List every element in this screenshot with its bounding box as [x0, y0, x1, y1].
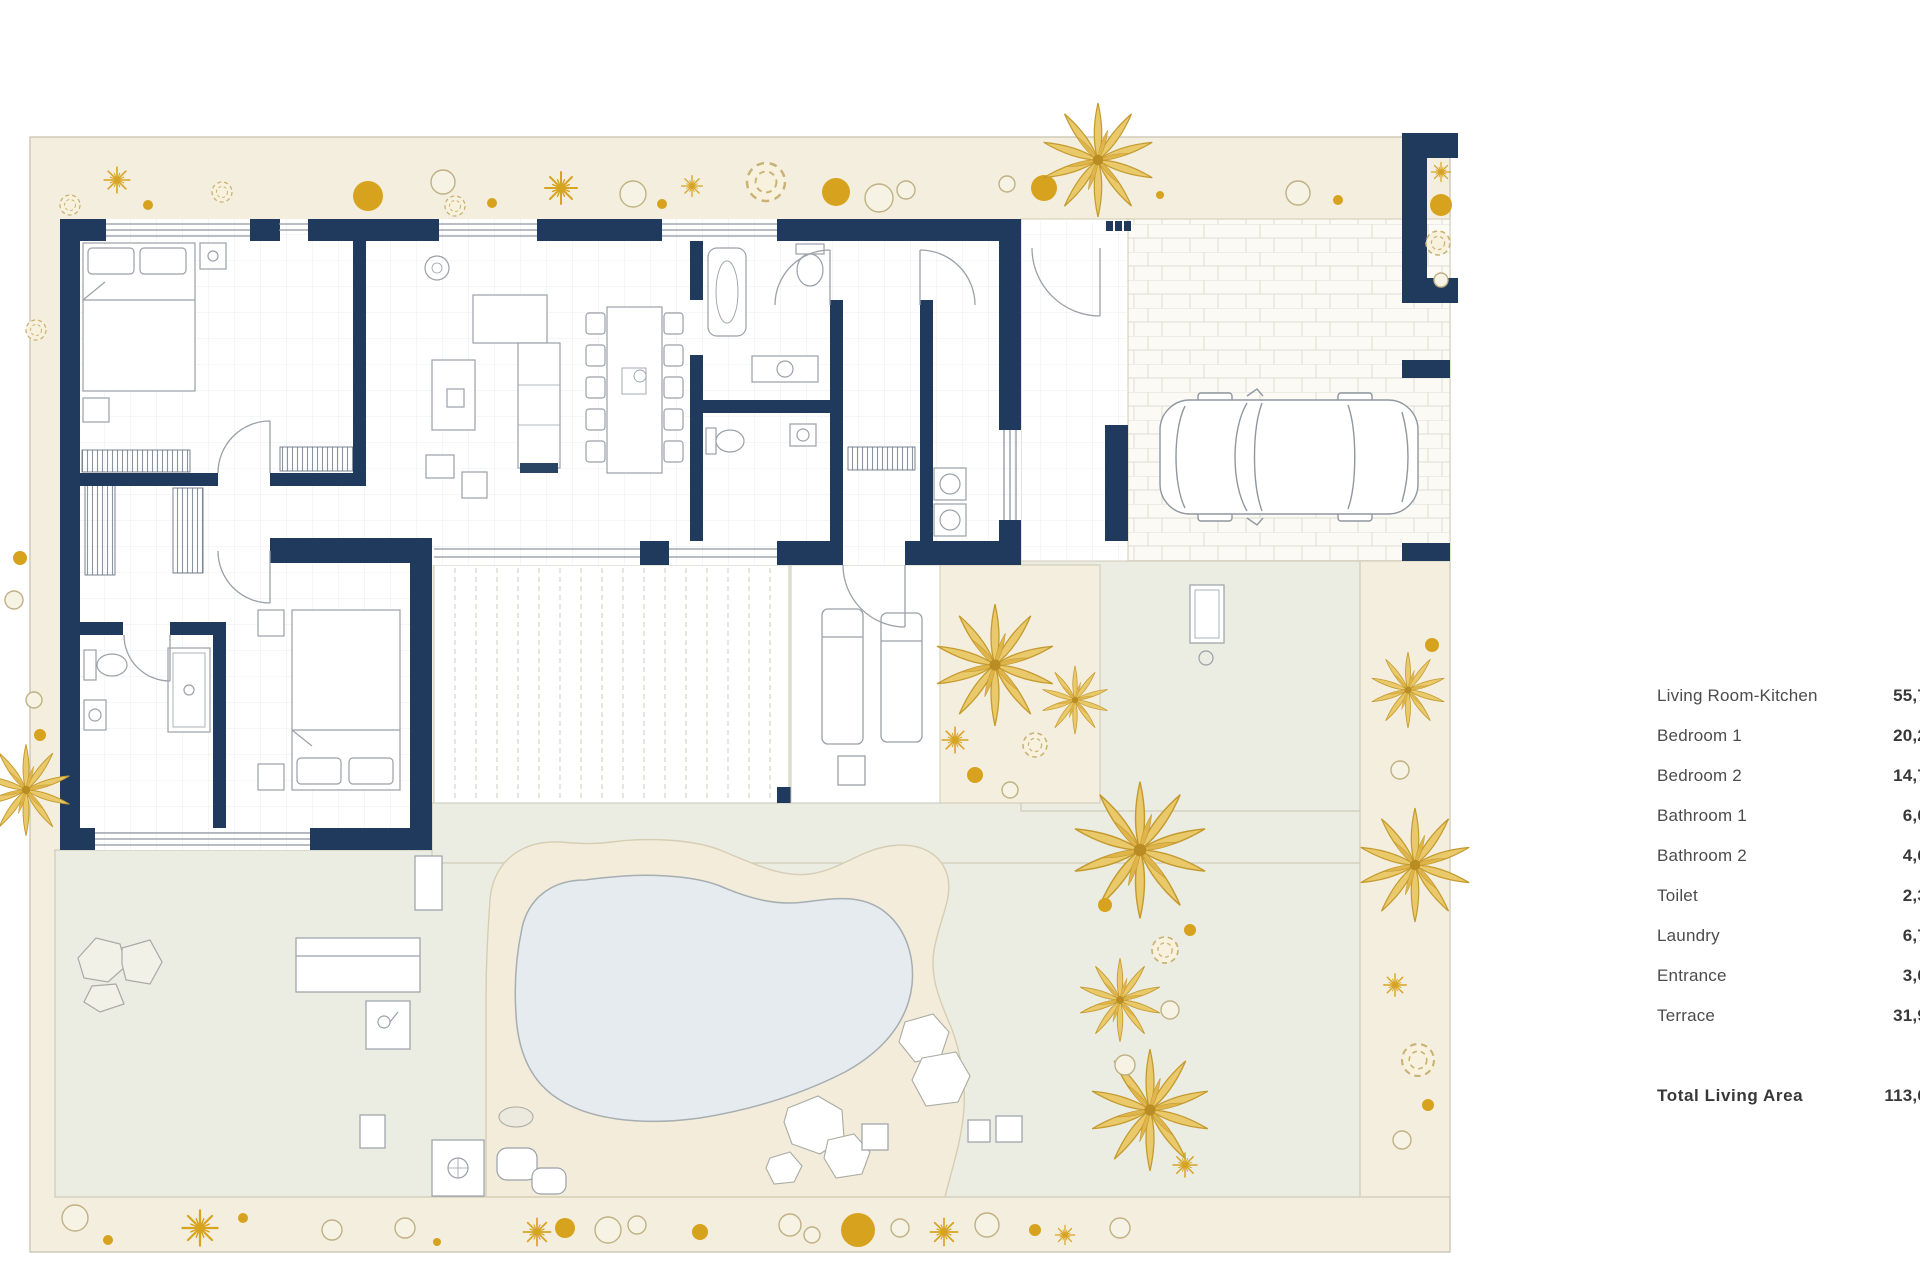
outdoor-chair: [366, 1001, 410, 1049]
room-area: 6,7: [1903, 916, 1920, 956]
stone: [532, 1168, 566, 1194]
legend-row: Toilet 2,3: [1657, 876, 1920, 916]
legend-row: Entrance 3,0: [1657, 956, 1920, 996]
planter-box: [415, 856, 442, 910]
vanity: [752, 356, 818, 382]
total-area: 113,6: [1884, 1076, 1920, 1116]
room-label: Toilet: [1657, 876, 1698, 916]
legend-row: Bedroom 2 14,7: [1657, 756, 1920, 796]
outdoor-sofa: [296, 938, 420, 992]
planter-box: [968, 1120, 990, 1142]
area-legend: Living Room-Kitchen 55,7 Bedroom 1 20,2 …: [1657, 676, 1920, 1116]
sun-lounger-area: [791, 565, 940, 803]
room-label: Bedroom 2: [1657, 756, 1742, 796]
nightstand: [83, 398, 109, 422]
legend-row: Bathroom 2 4,6: [1657, 836, 1920, 876]
room-area: 31,9: [1893, 996, 1920, 1036]
room-label: Living Room-Kitchen: [1657, 676, 1818, 716]
room-area: 14,7: [1893, 756, 1920, 796]
planter-box: [862, 1124, 888, 1150]
legend-row: Bedroom 1 20,2: [1657, 716, 1920, 756]
desk-chair: [447, 389, 464, 407]
room-area: 3,0: [1903, 956, 1920, 996]
dining-table: [586, 307, 683, 473]
pool: [486, 840, 970, 1197]
floor-plan-svg: [0, 0, 1920, 1280]
planter-box: [360, 1115, 385, 1148]
room-area: 55,7: [1893, 676, 1920, 716]
room-label: Bedroom 1: [1657, 716, 1742, 756]
side-table: [838, 756, 865, 785]
nightstand: [258, 610, 284, 636]
nightstand: [258, 764, 284, 790]
car-top-view: [1160, 389, 1418, 525]
room-label: Laundry: [1657, 916, 1720, 956]
legend-total-row: Total Living Area 113,6: [1657, 1076, 1920, 1116]
room-label: Bathroom 2: [1657, 836, 1747, 876]
room-area: 2,3: [1903, 876, 1920, 916]
nightstand: [200, 243, 226, 269]
kitchen-counter: [518, 343, 560, 468]
legend-row: Living Room-Kitchen 55,7: [1657, 676, 1920, 716]
room-area: 6,0: [1903, 796, 1920, 836]
room-label: Terrace: [1657, 996, 1715, 1036]
legend-row: Terrace 31,9: [1657, 996, 1920, 1036]
room-area: 20,2: [1893, 716, 1920, 756]
floor-plan-page: Living Room-Kitchen 55,7 Bedroom 1 20,2 …: [0, 0, 1920, 1280]
legend-row: Laundry 6,7: [1657, 916, 1920, 956]
legend-row: Bathroom 1 6,0: [1657, 796, 1920, 836]
room-label: Entrance: [1657, 956, 1727, 996]
deck-terrace: [434, 565, 791, 803]
total-label: Total Living Area: [1657, 1076, 1803, 1116]
sun-lounger: [822, 609, 863, 744]
sun-lounger: [881, 613, 922, 742]
kitchen-counter: [473, 295, 547, 343]
room-area: 4,6: [1903, 836, 1920, 876]
stone: [497, 1148, 537, 1180]
planter-box: [996, 1116, 1022, 1142]
room-label: Bathroom 1: [1657, 796, 1747, 836]
